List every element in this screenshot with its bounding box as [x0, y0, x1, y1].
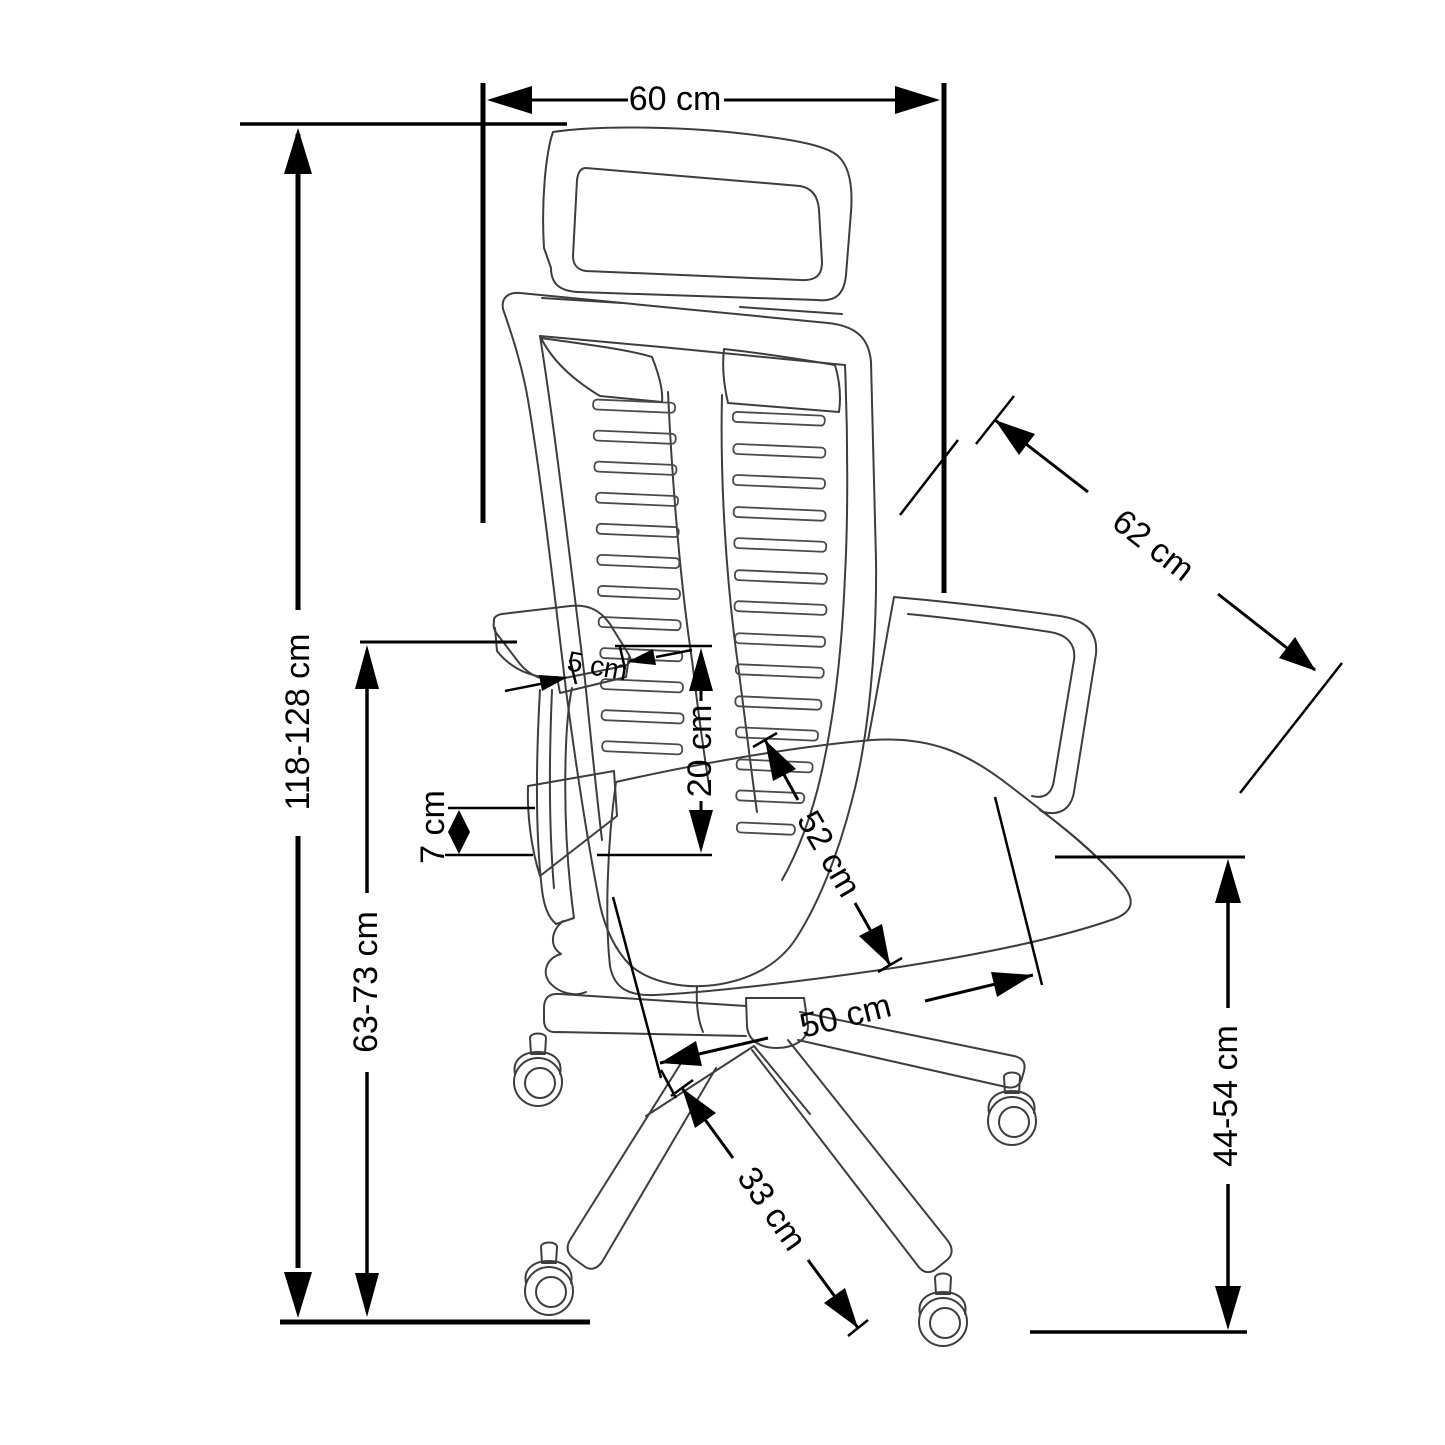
- arrowhead-up: [355, 645, 379, 689]
- armrest-right-outer: [868, 597, 1096, 813]
- backrest-bottom-curl: [546, 921, 586, 994]
- headrest-outer: [543, 127, 851, 300]
- mesh-slat: [735, 696, 821, 710]
- dim-label-52cm: 52 cm: [789, 804, 868, 903]
- dimension-backrest-armrest-gap: 20 cm: [615, 646, 719, 853]
- arrowhead-up: [765, 740, 796, 781]
- arrowhead-down: [284, 1272, 312, 1318]
- mesh-slat: [598, 586, 680, 600]
- arrowhead-up: [284, 128, 312, 174]
- mesh-slat: [602, 741, 682, 754]
- mesh-slat: [735, 570, 827, 584]
- dim-label-60cm: 60 cm: [629, 80, 722, 118]
- arrowhead-left: [660, 1041, 702, 1066]
- arrowhead-down: [689, 810, 713, 853]
- extension-line: [995, 797, 1042, 985]
- dim-label-50cm: 50 cm: [796, 986, 895, 1045]
- chair-line-art: [494, 127, 1131, 1346]
- arrowhead-left: [487, 86, 532, 114]
- mesh-slat: [597, 524, 679, 538]
- dimension-backrest-diagonal: 62 cm: [900, 396, 1342, 793]
- mesh-slats-left: [578, 399, 697, 754]
- mesh-slat: [596, 493, 678, 507]
- dim-label-44-54cm: 44-54 cm: [1207, 1025, 1245, 1167]
- dimension-overall-height: 118-128 cm: [240, 124, 567, 1318]
- arrowhead-down: [859, 924, 890, 965]
- dim-label-33cm: 33 cm: [730, 1160, 814, 1258]
- extension-line: [1240, 663, 1342, 793]
- extension-line: [900, 440, 958, 515]
- arrowhead-up: [995, 420, 1035, 455]
- backrest-spine-right: [722, 395, 757, 812]
- mesh-slat: [733, 412, 825, 426]
- mesh-slat: [734, 538, 826, 552]
- mesh-slat: [733, 507, 825, 521]
- mesh-slat: [734, 601, 826, 615]
- armrest-right-inner: [908, 614, 1074, 797]
- mesh-slat: [733, 475, 825, 489]
- mesh-slat: [737, 822, 795, 835]
- armrest-support: [537, 688, 574, 924]
- backrest-inner-top: [540, 336, 845, 365]
- arrowhead-down: [1279, 637, 1316, 671]
- dim-label-62cm: 62 cm: [1105, 502, 1201, 589]
- dim-label-20cm: 20 cm: [681, 705, 719, 798]
- armrest-support-inner: [550, 690, 554, 888]
- caster-wheel-right: [988, 1073, 1036, 1146]
- caster-wheel-front-right: [919, 1274, 967, 1347]
- caster-wheel-front-left: [525, 1243, 573, 1316]
- arrowhead-right: [991, 972, 1033, 997]
- mesh-slat: [594, 461, 676, 475]
- mesh-slat: [601, 710, 683, 724]
- headrest-tab-right: [740, 307, 842, 314]
- arrowhead-down: [1215, 1286, 1241, 1330]
- arrowhead-left: [627, 649, 656, 665]
- headrest-inner: [573, 168, 822, 280]
- arrowhead-right: [895, 86, 940, 114]
- dim-label-7cm: 7 cm: [414, 790, 452, 864]
- leader-line: [505, 683, 545, 691]
- mesh-slat: [733, 444, 825, 458]
- backrest-stem: [697, 986, 703, 1032]
- dimension-armrest-pad: 7 cm: [414, 790, 712, 864]
- dimension-base-leg: 33 cm: [671, 1080, 868, 1336]
- dim-label-118-128cm: 118-128 cm: [279, 633, 317, 810]
- dimension-armrest-height: 63-73 cm: [347, 642, 517, 1317]
- mesh-slat: [736, 664, 824, 678]
- mesh-slat: [597, 555, 679, 569]
- arrowhead-right: [539, 675, 568, 691]
- arrowhead-down: [824, 1288, 858, 1328]
- arrowhead-up: [682, 1088, 716, 1128]
- armrest-right-to-seat: [1043, 812, 1122, 884]
- dimension-seat-depth: 52 cm: [753, 733, 902, 972]
- caster-wheel-left: [514, 1034, 562, 1107]
- seat-side-face: [528, 771, 617, 876]
- arrowhead-up: [1215, 859, 1241, 903]
- dim-label-63-73cm: 63-73 cm: [347, 911, 385, 1053]
- mesh-opening-left: [541, 338, 662, 402]
- arrowhead-down: [355, 1273, 379, 1317]
- mesh-slat: [735, 633, 825, 647]
- mesh-slat: [594, 430, 676, 444]
- chair-dimension-diagram: 60 cm 118-128 cm 63-73 cm 7 cm 5 cm: [0, 0, 1445, 1445]
- diagram-canvas: 60 cm 118-128 cm 63-73 cm 7 cm 5 cm: [0, 0, 1445, 1445]
